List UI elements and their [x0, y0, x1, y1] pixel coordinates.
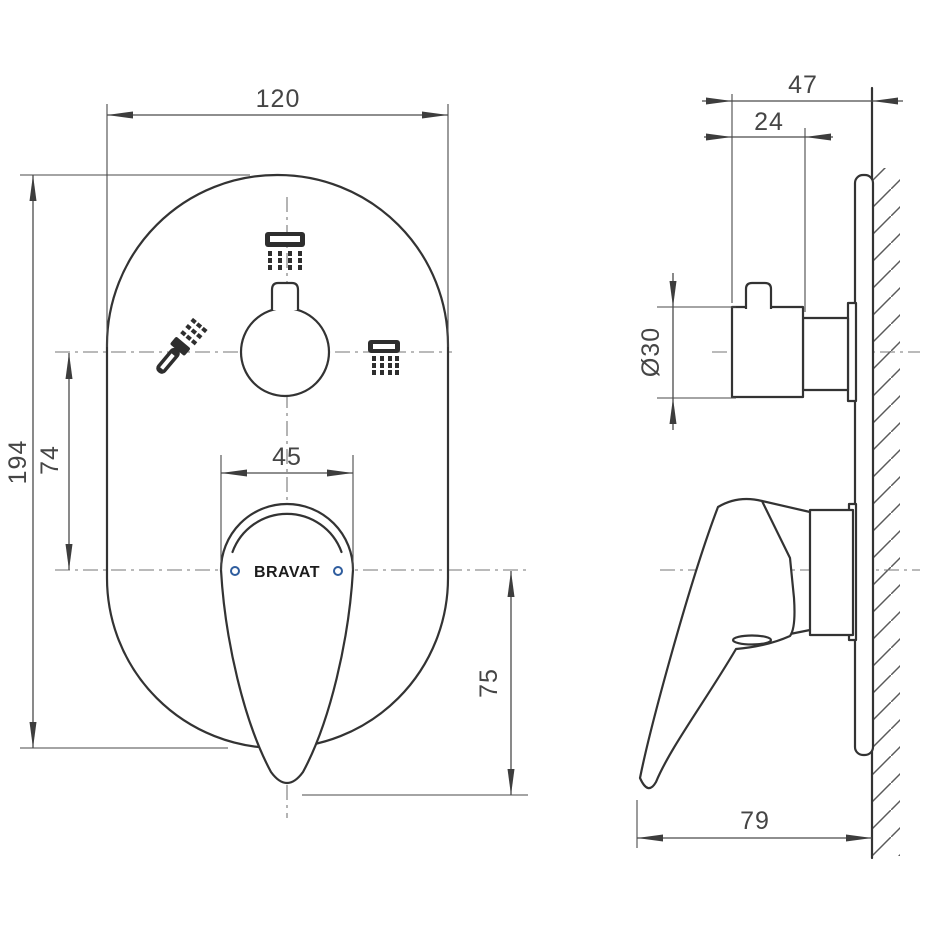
svg-text:120: 120 — [256, 85, 301, 113]
lever-handle-front — [221, 504, 353, 783]
svg-text:74: 74 — [36, 445, 64, 475]
wall-hatch — [872, 168, 900, 856]
knob-flange — [848, 303, 856, 401]
hand-shower-icon — [151, 317, 207, 379]
hot-indicator-dot — [231, 567, 239, 575]
diverter-knob — [241, 308, 329, 396]
svg-text:47: 47 — [788, 71, 818, 99]
svg-text:75: 75 — [475, 668, 503, 698]
knob-tab-side — [746, 283, 771, 309]
svg-text:Ø30: Ø30 — [637, 327, 665, 377]
drawing-svg: BRAVAT 120 194 74 — [0, 0, 930, 930]
knob-side-profile — [732, 307, 803, 397]
svg-text:79: 79 — [740, 807, 770, 835]
lever-thumb-notch — [733, 636, 771, 645]
knob-neck — [803, 318, 848, 390]
svg-text:24: 24 — [754, 108, 784, 136]
dim-handle-reach: 79 — [637, 800, 872, 848]
brand-logo: BRAVAT — [254, 564, 320, 581]
diverter-knob-tab — [272, 283, 298, 310]
handle-hub-joint-top — [762, 501, 810, 512]
svg-text:45: 45 — [272, 443, 302, 471]
side-view: 47 24 Ø30 79 — [637, 71, 920, 858]
handle-hub — [810, 510, 853, 635]
cold-indicator-dot — [334, 567, 342, 575]
rain-shower-icon — [265, 232, 305, 270]
dim-knob-depth: 24 — [704, 108, 833, 312]
overhead-shower-icon — [368, 340, 400, 375]
svg-text:194: 194 — [4, 440, 32, 485]
technical-drawing-canvas: BRAVAT 120 194 74 — [0, 0, 930, 930]
front-view: BRAVAT 120 194 74 — [4, 85, 528, 818]
dim-knob-to-handle: 74 — [36, 353, 73, 570]
plate-side-profile — [855, 175, 873, 755]
lever-handle-side — [640, 499, 795, 788]
